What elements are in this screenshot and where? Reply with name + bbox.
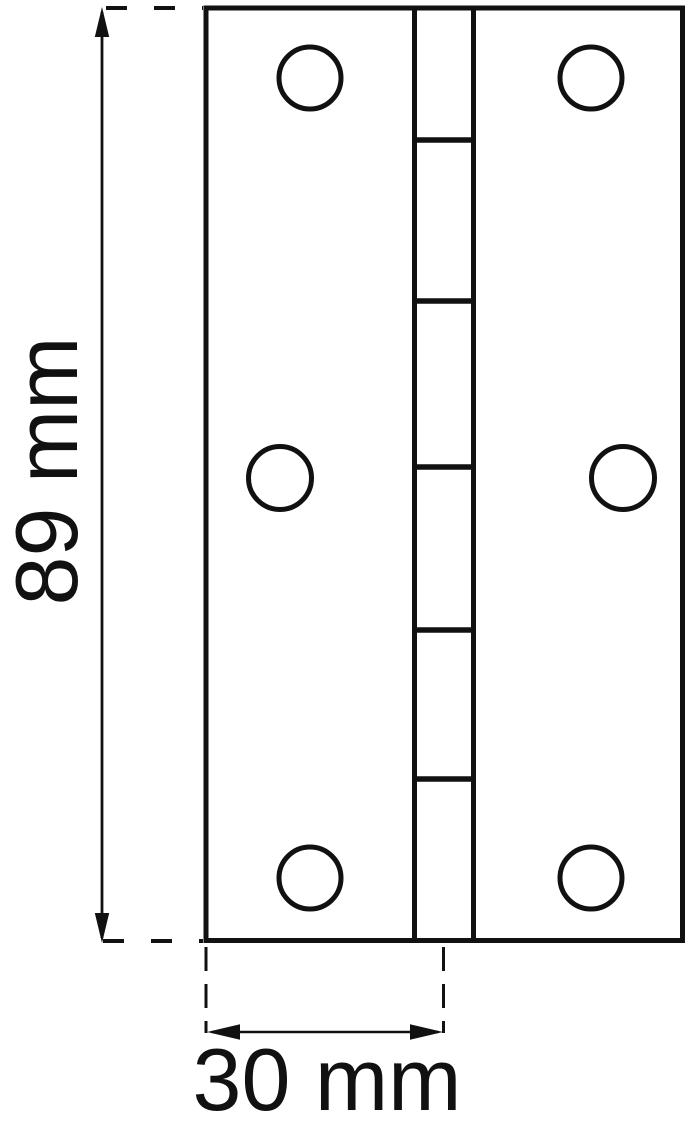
dimension-arrowhead-down-icon [95, 913, 109, 943]
hinge-diagram: 89 mm 30 mm [0, 0, 688, 1132]
dimension-arrowhead-up-icon [95, 7, 109, 37]
hinge-drawing-svg: 89 mm 30 mm [0, 0, 688, 1132]
hinge-body [206, 8, 683, 941]
screw-hole-middle-left [249, 447, 312, 510]
screw-hole-bottom-left [279, 847, 341, 909]
screw-hole-top-right [560, 47, 622, 109]
width-dimension: 30 mm [193, 947, 462, 1129]
screw-hole-bottom-right [560, 847, 622, 909]
hinge-outline [206, 8, 683, 941]
screw-hole-top-left [279, 47, 341, 109]
height-dimension: 89 mm [0, 7, 203, 943]
screw-hole-middle-right [592, 447, 655, 510]
height-dimension-label: 89 mm [0, 337, 96, 606]
width-dimension-label: 30 mm [193, 1030, 462, 1129]
